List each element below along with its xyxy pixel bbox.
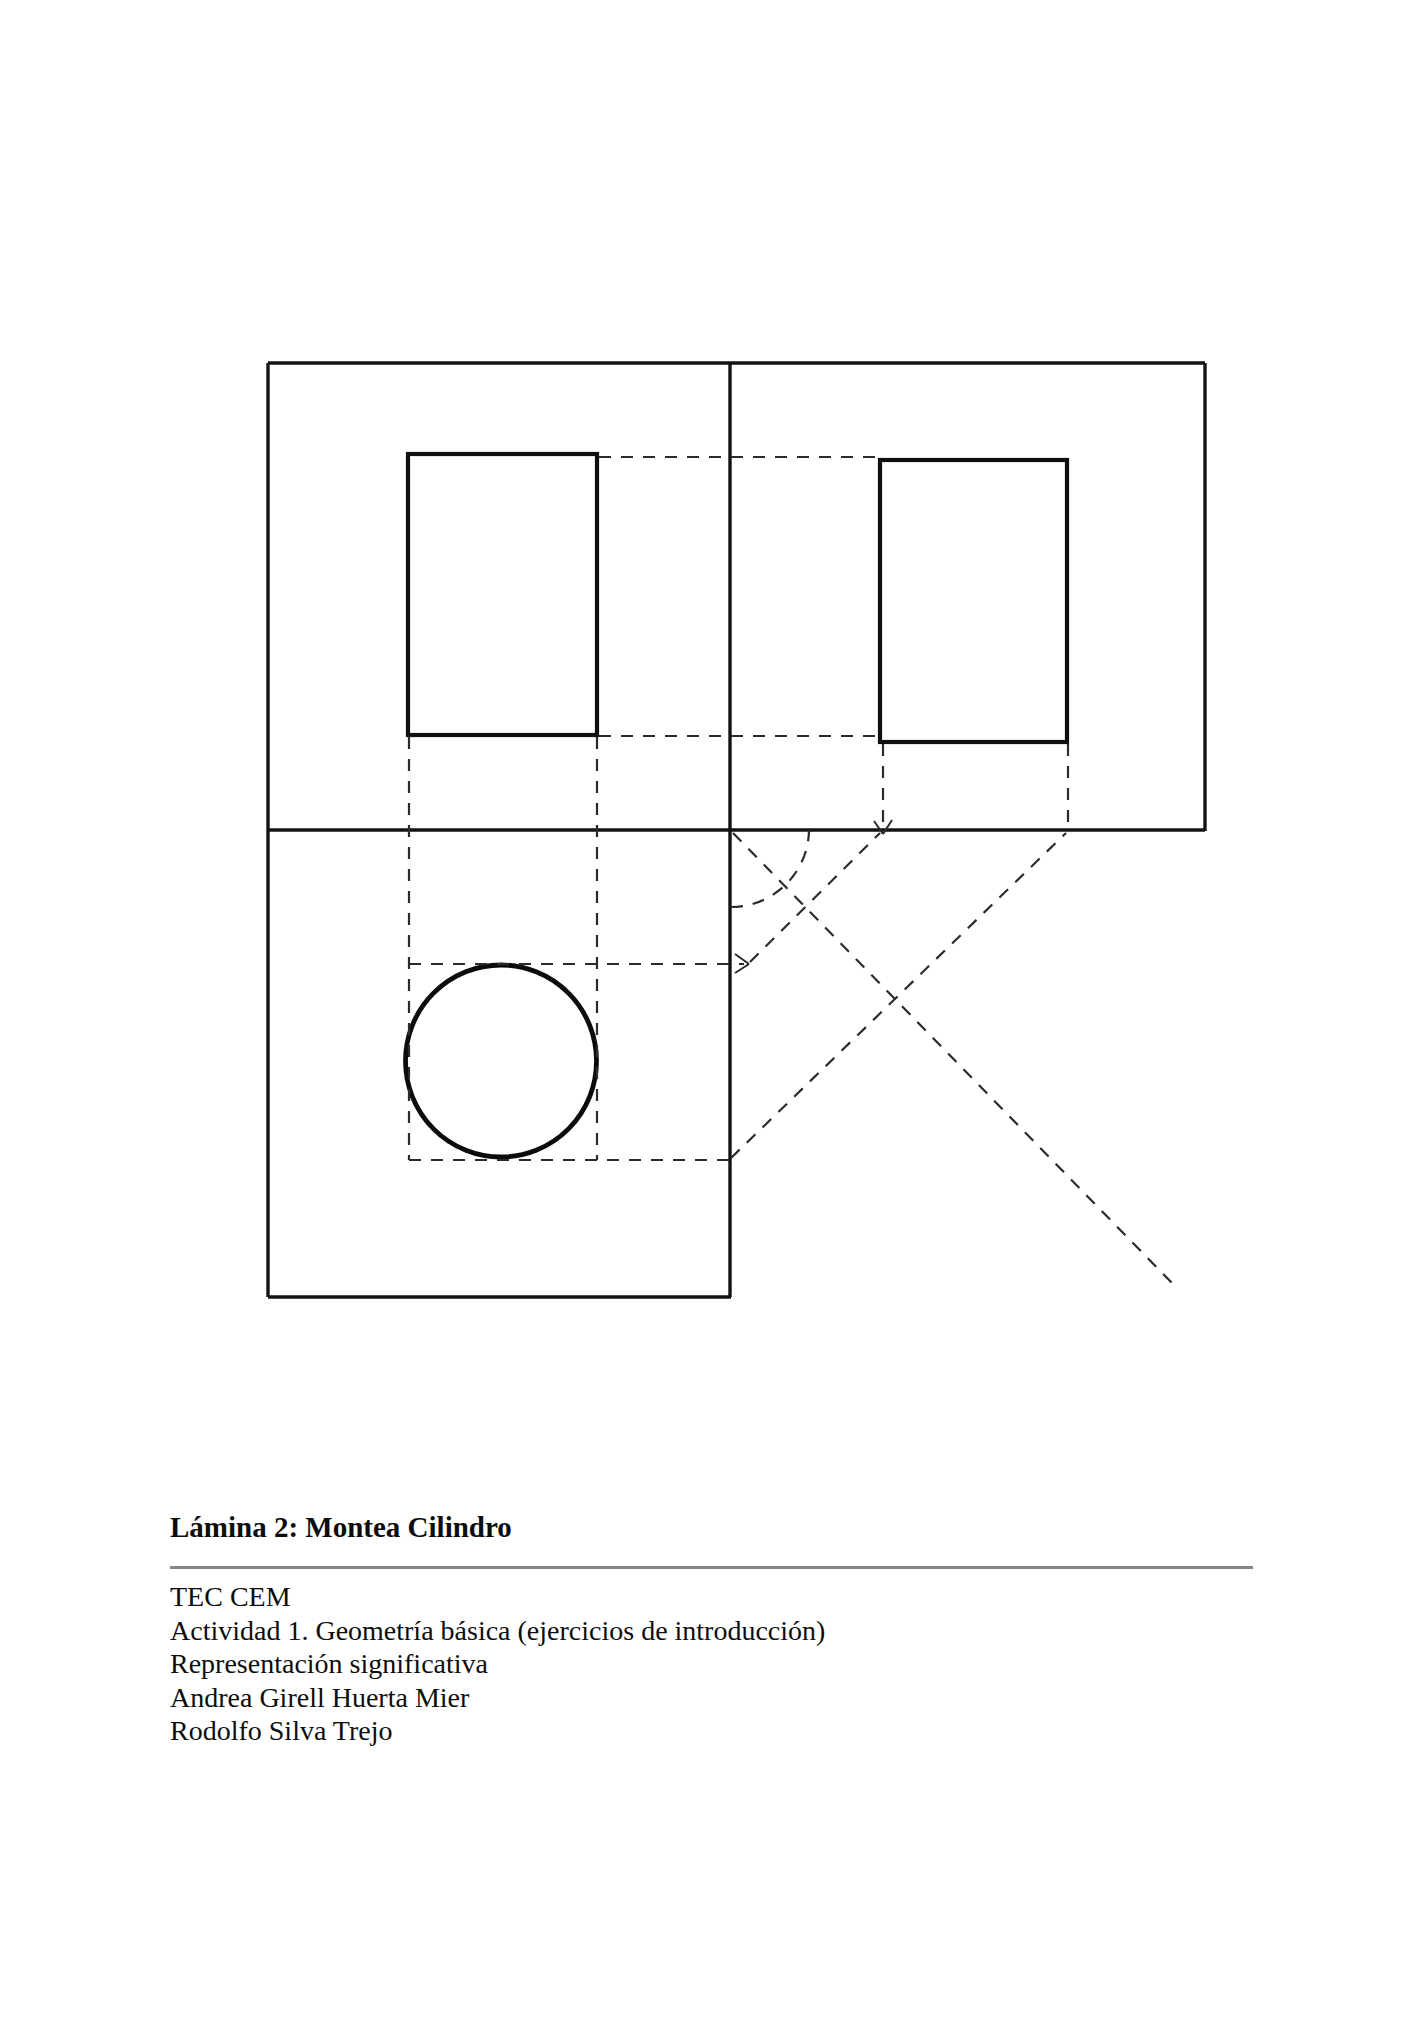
figure-title: Lámina 2: Montea Cilindro: [170, 1510, 1265, 1544]
projection-dashed-line: [750, 833, 880, 962]
arrowhead-segment: [883, 820, 892, 834]
caption-block: Lámina 2: Montea Cilindro TEC CEMActivid…: [170, 1510, 1265, 1748]
caption-line: Andrea Girell Huerta Mier: [170, 1681, 1265, 1715]
projection-dashed-line: [733, 833, 1172, 1283]
arrowhead-segment: [735, 954, 749, 964]
caption-line: Representación significativa: [170, 1647, 1265, 1681]
caption-lines: TEC CEMActividad 1. Geometría básica (ej…: [170, 1580, 1265, 1748]
front-view-rectangle: [408, 454, 597, 735]
arrowhead-segment: [735, 964, 749, 973]
top-view-circle: [406, 965, 597, 1157]
side-view-rectangle: [880, 460, 1067, 742]
projection-arc: [731, 830, 809, 907]
caption-line: TEC CEM: [170, 1580, 1265, 1614]
arrowhead-segment: [874, 821, 883, 834]
caption-line: Rodolfo Silva Trejo: [170, 1714, 1265, 1748]
caption-line: Actividad 1. Geometría básica (ejercicio…: [170, 1614, 1265, 1648]
document-page: Lámina 2: Montea Cilindro TEC CEMActivid…: [0, 0, 1428, 2028]
caption-divider: [170, 1566, 1253, 1569]
